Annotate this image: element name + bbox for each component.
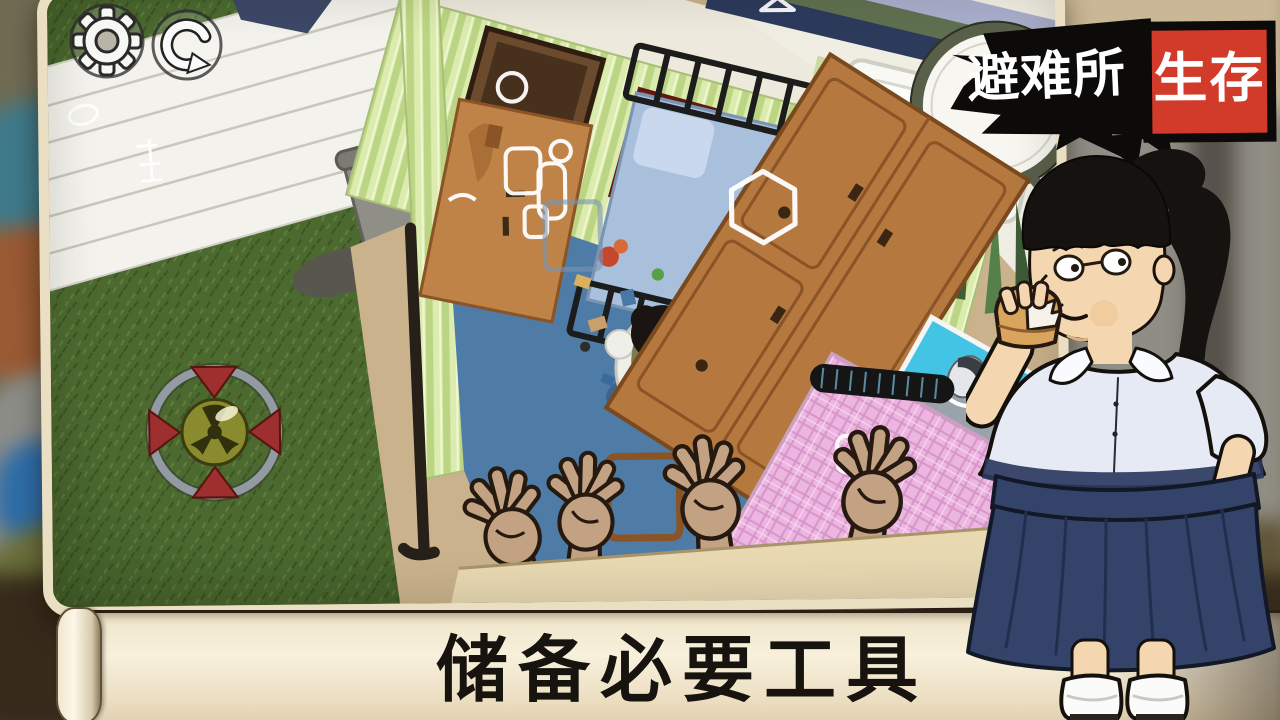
scene-panel[interactable] (37, 0, 1072, 617)
gear-icon (68, 2, 146, 80)
shelter-hatch-marker[interactable] (149, 366, 281, 498)
restart-button[interactable] (150, 8, 224, 82)
game-screen: 避难所 生存 储备必要工具 (0, 0, 1280, 720)
caption-text: 储备必要工具 (436, 611, 928, 720)
chewing-cheek (1090, 300, 1118, 328)
skirt (968, 504, 1274, 670)
settings-button[interactable] (68, 2, 146, 80)
scene-illustration (47, 0, 1061, 607)
shoe-right (1136, 714, 1184, 720)
restart-arrow-icon (150, 8, 224, 82)
ear (1154, 256, 1174, 284)
shoe-left (1070, 714, 1118, 720)
logo-text-shelter: 避难所 (966, 47, 1144, 107)
ponytail (1166, 184, 1230, 373)
logo-text-survival: 生存 (1153, 51, 1265, 106)
scroll-roll-edge (56, 607, 102, 720)
character-girl (966, 140, 1278, 720)
